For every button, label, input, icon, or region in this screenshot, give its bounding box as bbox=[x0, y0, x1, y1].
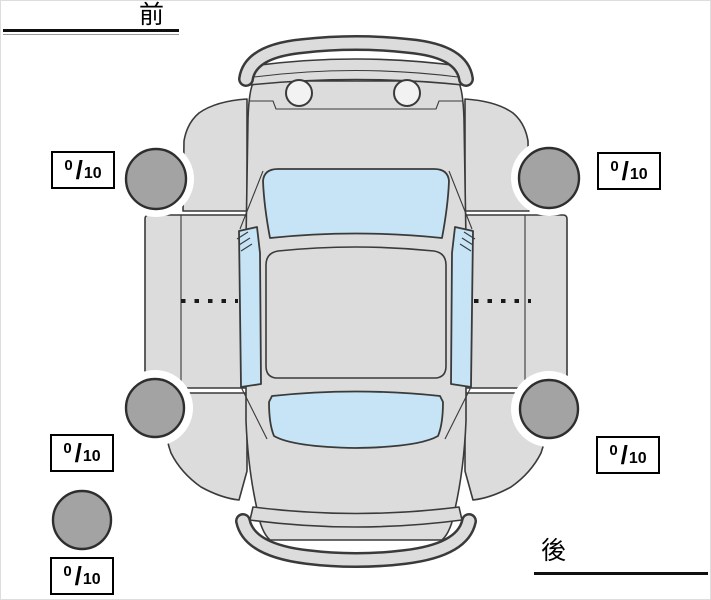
score-box-front-right: 0 / 10 bbox=[597, 152, 661, 190]
car-top-view bbox=[1, 1, 711, 600]
right-headlight-icon bbox=[394, 80, 420, 106]
score-box-front-left: 0 / 10 bbox=[51, 151, 115, 189]
front-right-tire-icon bbox=[519, 148, 579, 208]
score-separator: / bbox=[622, 156, 629, 187]
score-box-spare: 0 / 10 bbox=[50, 557, 114, 595]
score-max: 10 bbox=[629, 450, 647, 468]
score-value: 0 bbox=[64, 157, 72, 174]
front-left-fender-shape bbox=[183, 99, 247, 211]
score-value: 0 bbox=[609, 442, 617, 459]
front-label: 前 bbox=[139, 3, 165, 28]
front-left-tire-icon bbox=[126, 149, 186, 209]
spare-tire-icon bbox=[53, 491, 111, 549]
score-max: 10 bbox=[83, 448, 101, 466]
right-side-window bbox=[451, 227, 473, 387]
windshield bbox=[263, 169, 449, 238]
car-condition-diagram: 前 後 0 / 10 0 / 10 0 / 10 0 / 10 0 / 10 bbox=[0, 0, 711, 600]
roof-panel bbox=[266, 247, 446, 378]
rear-underline bbox=[534, 572, 708, 575]
front-underline bbox=[3, 29, 179, 32]
score-box-rear-right: 0 / 10 bbox=[596, 436, 660, 474]
rear-right-tire-icon bbox=[520, 380, 578, 438]
left-side-window bbox=[239, 227, 261, 387]
left-headlight-icon bbox=[286, 80, 312, 106]
rear-window bbox=[269, 392, 443, 449]
rear-label: 後 bbox=[541, 539, 567, 564]
score-separator: / bbox=[75, 561, 82, 592]
score-max: 10 bbox=[83, 571, 101, 589]
score-max: 10 bbox=[630, 166, 648, 184]
score-value: 0 bbox=[63, 563, 71, 580]
score-box-rear-left: 0 / 10 bbox=[50, 434, 114, 472]
front-underline-shadow bbox=[3, 34, 179, 35]
score-separator: / bbox=[75, 438, 82, 469]
rear-left-tire-icon bbox=[126, 379, 184, 437]
score-separator: / bbox=[621, 440, 628, 471]
score-separator: / bbox=[76, 155, 83, 186]
score-value: 0 bbox=[63, 440, 71, 457]
score-value: 0 bbox=[610, 158, 618, 175]
score-max: 10 bbox=[84, 165, 102, 183]
